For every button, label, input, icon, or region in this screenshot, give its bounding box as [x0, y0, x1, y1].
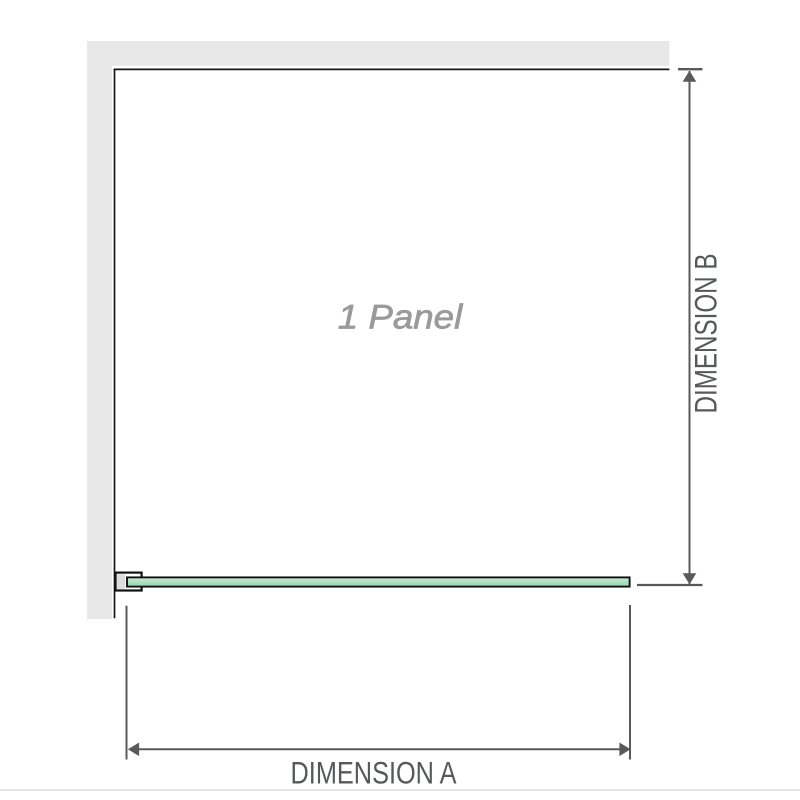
svg-text:DIMENSION A: DIMENSION A	[291, 754, 457, 790]
svg-text:DIMENSION B: DIMENSION B	[688, 254, 724, 414]
svg-text:1 Panel: 1 Panel	[338, 299, 464, 337]
